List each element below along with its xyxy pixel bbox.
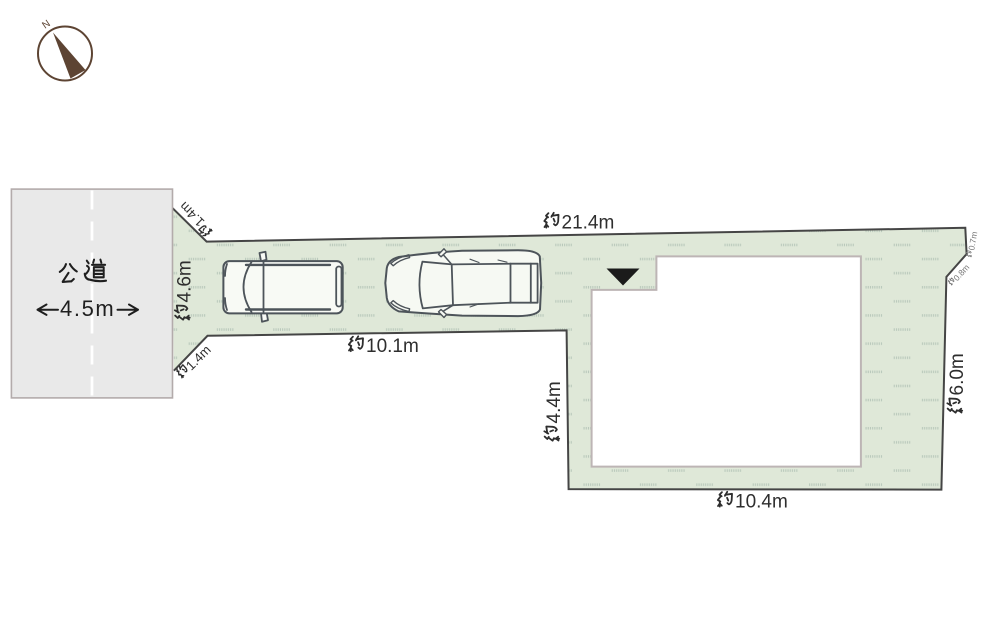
svg-text:0.7m: 0.7m [966, 231, 979, 251]
svg-text:10.4m: 10.4m [735, 492, 788, 513]
svg-text:4.4m: 4.4m [544, 381, 565, 423]
svg-text:4.5m: 4.5m [60, 296, 115, 321]
svg-text:6.0m: 6.0m [947, 353, 968, 395]
svg-text:10.1m: 10.1m [366, 336, 419, 357]
svg-text:21.4m: 21.4m [562, 213, 615, 234]
svg-text:4.6m: 4.6m [175, 260, 196, 302]
